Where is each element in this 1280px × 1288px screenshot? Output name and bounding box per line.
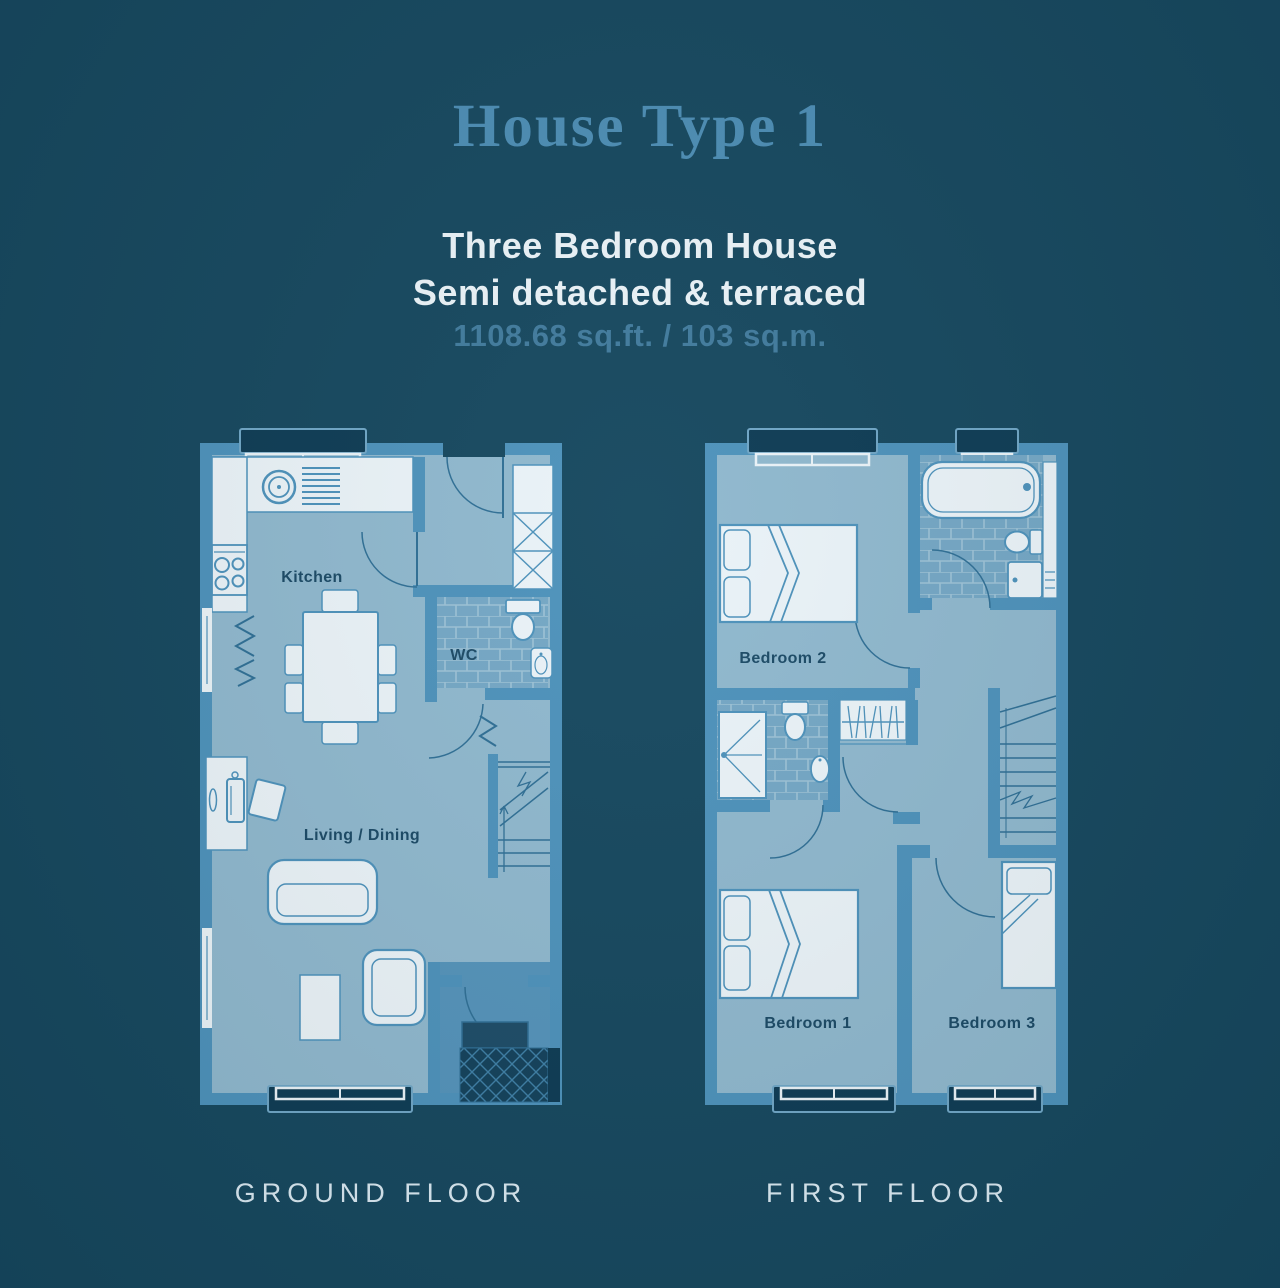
wc-room [437,597,552,688]
floorplan-sheet: House Type 1 Three Bedroom House Semi de… [0,0,1280,1288]
ground-floor-plan: Kitchen WC Living / Dining [196,428,566,1114]
subtitle-line2: Semi detached & terraced [0,269,1280,316]
room-label-kitchen: Kitchen [281,569,342,586]
room-label-bedroom2: Bedroom 2 [739,650,826,667]
toilet-icon [1005,532,1029,553]
first-floor-plan: Bedroom 2 Bedroom 1 Bedroom 3 [700,428,1076,1114]
room-label-wc: WC [450,647,478,664]
coffee-table [300,975,340,1040]
herringbone-floor [460,1048,548,1102]
room-label-living-dining: Living / Dining [304,827,420,844]
sofa [268,860,377,924]
hob [212,545,247,595]
bathroom [920,455,1057,598]
storage-cupboard [513,465,553,590]
toilet-icon [512,614,534,640]
wardrobe [840,700,906,744]
armchair [363,950,425,1025]
room-label-bedroom1: Bedroom 1 [764,1015,851,1032]
ensuite [717,700,829,800]
bed-double-bedroom2 [720,525,857,622]
toilet-icon [785,714,805,740]
ground-floor-caption: GROUND FLOOR [196,1178,566,1209]
bed-single-bedroom3 [1002,862,1056,988]
room-label-bedroom3: Bedroom 3 [948,1015,1035,1032]
doormat [462,1022,528,1048]
bathtub-icon [922,462,1040,518]
page-title: House Type 1 [0,92,1280,162]
bottom-window [268,1086,412,1112]
bed-double-bedroom1 [720,890,858,998]
toilet-cistern [506,600,540,613]
subtitle-line1: Three Bedroom House [0,222,1280,269]
subtitle: Three Bedroom House Semi detached & terr… [0,222,1280,316]
first-floor-caption: FIRST FLOOR [700,1178,1076,1209]
area-text: 1108.68 sq.ft. / 103 sq.m. [0,318,1280,354]
drainer-icon [302,468,340,504]
